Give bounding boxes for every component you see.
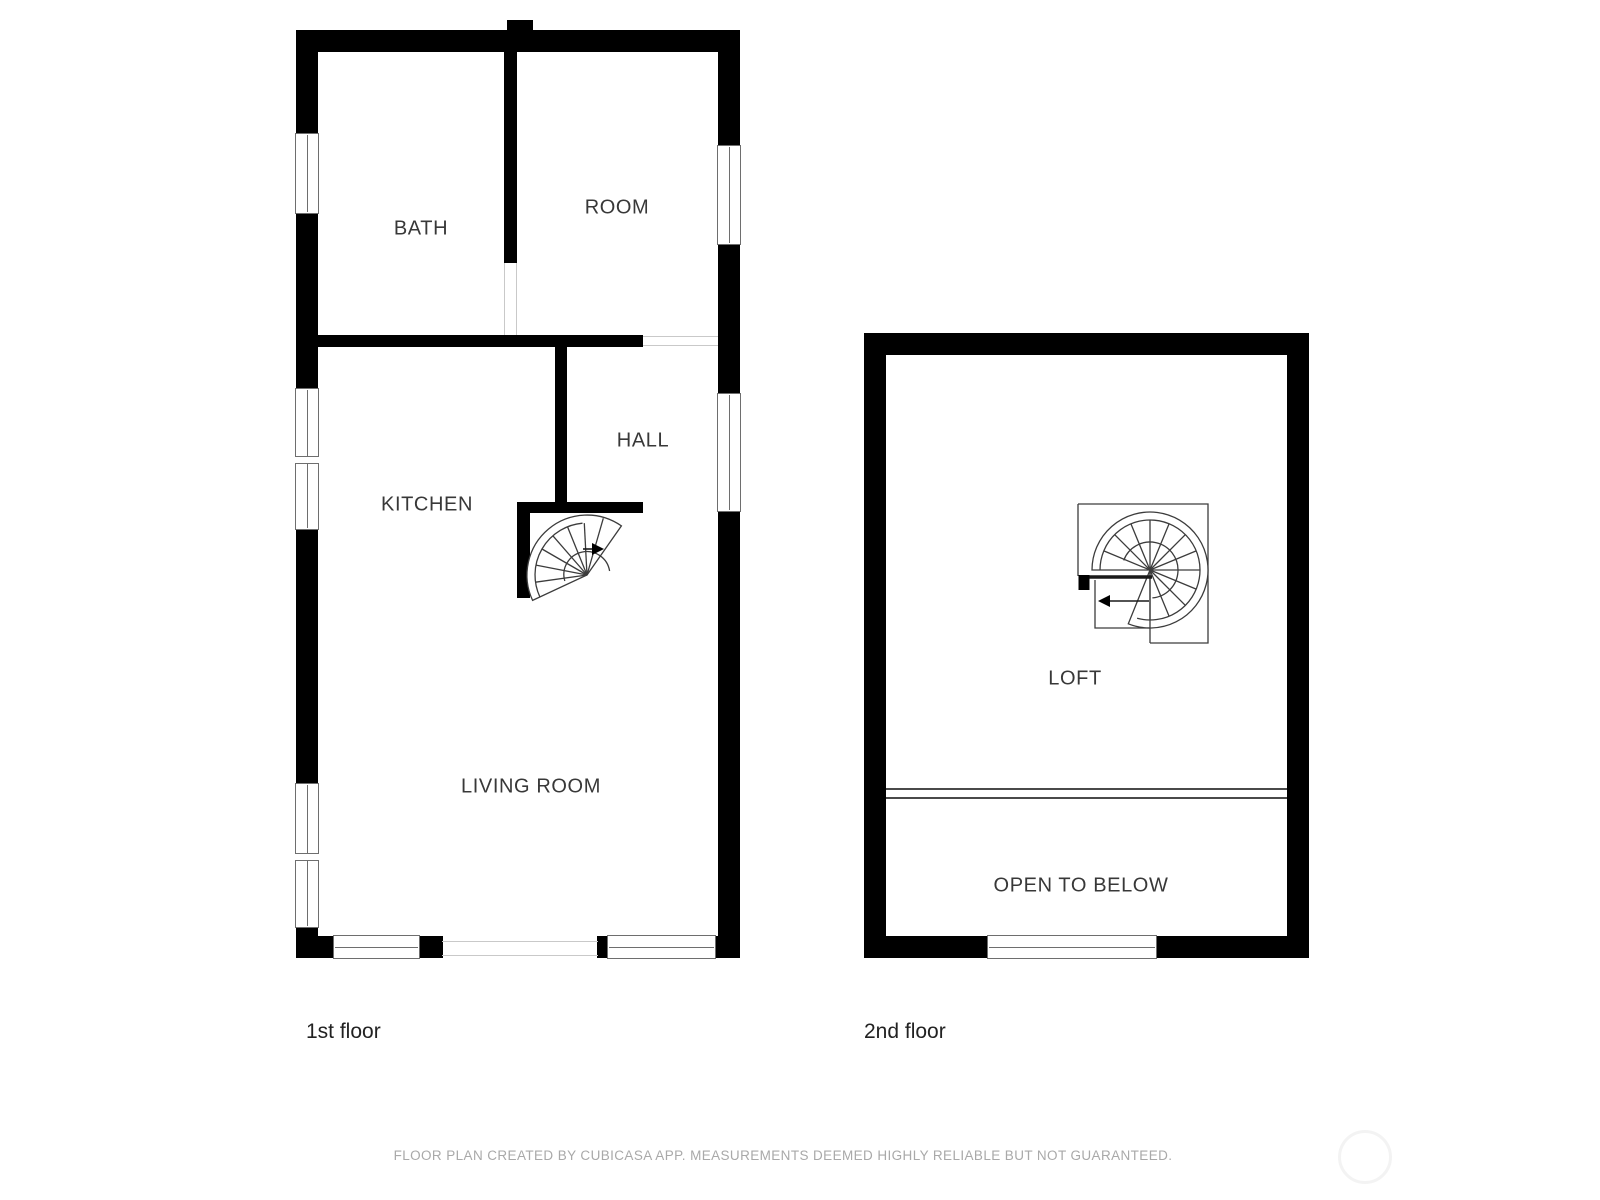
floor-title-2nd: 2nd floor bbox=[864, 1020, 946, 1044]
stair-arrow-left-icon bbox=[1098, 595, 1110, 607]
room-label-room: ROOM bbox=[585, 197, 650, 220]
spiral-staircase-icon bbox=[505, 495, 655, 610]
wall-top bbox=[864, 333, 1309, 355]
window bbox=[333, 935, 420, 959]
window-double bbox=[295, 783, 319, 928]
window bbox=[717, 393, 741, 512]
room-label-living-room: LIVING ROOM bbox=[461, 776, 601, 799]
door-opening-bath bbox=[504, 263, 505, 335]
wall-left bbox=[296, 214, 318, 388]
loft-edge-line bbox=[886, 788, 1287, 790]
wall-bottom bbox=[716, 936, 740, 958]
wall-stub bbox=[507, 20, 533, 30]
patio-door-opening bbox=[442, 955, 598, 956]
window bbox=[717, 145, 741, 245]
loft-edge-line bbox=[886, 797, 1287, 799]
wall-left bbox=[296, 530, 318, 783]
wall-bottom bbox=[420, 936, 443, 958]
door-opening-room-hall bbox=[643, 336, 718, 337]
floor-plan-canvas: BATH ROOM KITCHEN HALL LIVING ROOM 1st f… bbox=[0, 0, 1600, 1200]
wall-right bbox=[718, 52, 740, 145]
floor-title-1st: 1st floor bbox=[306, 1020, 381, 1044]
wall-left bbox=[296, 52, 318, 133]
wall-mid-horizontal bbox=[296, 335, 643, 347]
room-label-kitchen: KITCHEN bbox=[381, 494, 473, 517]
room-label-bath: BATH bbox=[394, 218, 448, 241]
wall-bath-room-divider bbox=[504, 52, 517, 263]
wall-bottom bbox=[1157, 936, 1309, 958]
room-label-loft: LOFT bbox=[1048, 668, 1102, 691]
wall-right bbox=[1287, 333, 1309, 958]
window-double bbox=[295, 388, 319, 530]
wall-right bbox=[718, 245, 740, 393]
room-label-open-to-below: OPEN TO BELOW bbox=[994, 875, 1169, 898]
wall-left bbox=[296, 928, 318, 936]
door-opening-room-hall bbox=[643, 345, 718, 346]
footer-disclaimer: FLOOR PLAN CREATED BY CUBICASA APP. MEAS… bbox=[0, 1148, 1566, 1163]
watermark-circle-icon bbox=[1338, 1130, 1392, 1184]
wall-kitchen-hall-divider bbox=[555, 347, 567, 502]
wall-bottom bbox=[597, 936, 607, 958]
window bbox=[607, 935, 716, 959]
patio-door-opening bbox=[442, 941, 598, 942]
door-opening-bath bbox=[516, 263, 517, 335]
room-label-hall: HALL bbox=[617, 430, 669, 453]
wall-top bbox=[296, 30, 740, 52]
wall-bottom bbox=[296, 936, 333, 958]
wall-right bbox=[718, 512, 740, 936]
wall-left bbox=[864, 333, 886, 958]
wall-bottom bbox=[864, 936, 987, 958]
spiral-staircase-icon bbox=[1070, 495, 1215, 650]
window bbox=[295, 133, 319, 214]
window bbox=[987, 935, 1157, 959]
